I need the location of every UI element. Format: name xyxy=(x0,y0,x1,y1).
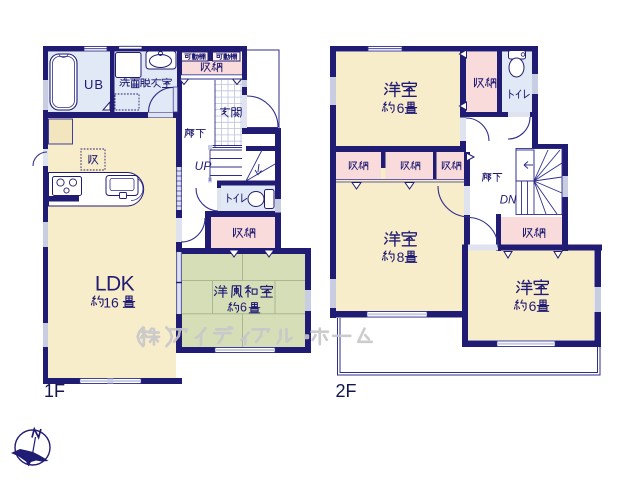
svg-text:UB: UB xyxy=(84,77,104,92)
svg-text:6: 6 xyxy=(529,298,537,314)
svg-text:16: 16 xyxy=(103,295,119,311)
svg-text:2F: 2F xyxy=(336,381,357,401)
svg-text:1F: 1F xyxy=(44,381,65,401)
svg-text:DN: DN xyxy=(500,195,517,207)
svg-text:LDK: LDK xyxy=(95,273,135,296)
svg-text:6: 6 xyxy=(397,100,405,116)
svg-text:6: 6 xyxy=(240,301,247,315)
svg-text:UP: UP xyxy=(195,159,212,173)
svg-text:8: 8 xyxy=(397,249,405,265)
